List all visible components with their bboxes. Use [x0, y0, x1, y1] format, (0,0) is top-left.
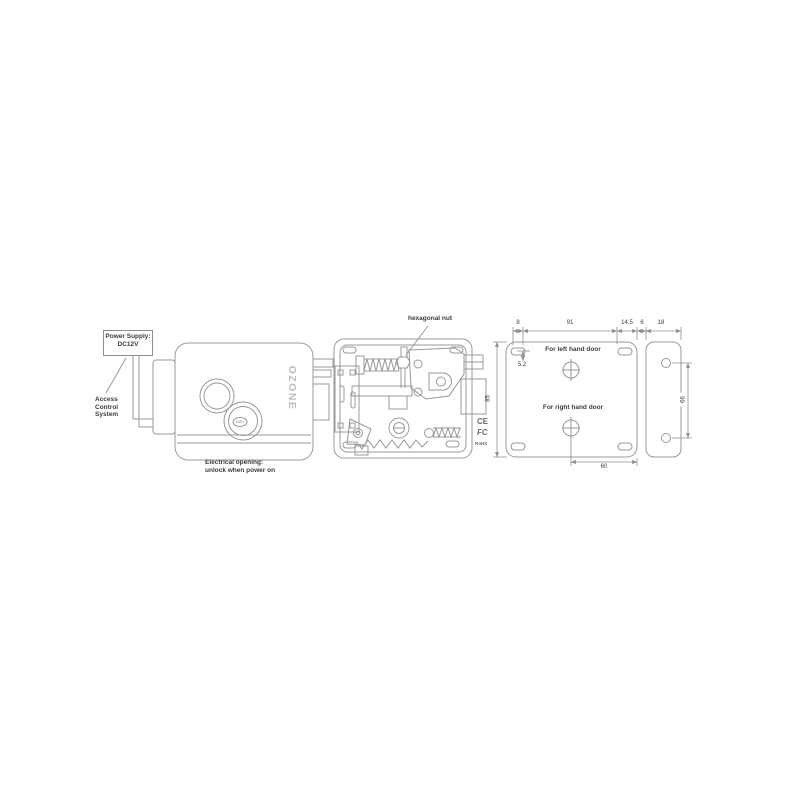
mounting-plate-view [506, 342, 681, 457]
dim-slot-spacing: 91 [560, 320, 580, 327]
screw-position-upper [562, 359, 580, 381]
case-corner-slots [343, 347, 463, 448]
dim-slot-to-edge: 14.5 [616, 320, 638, 327]
fcc-mark: FC [477, 428, 488, 437]
access-callout-line [106, 358, 126, 393]
lock-body-seams [177, 435, 311, 443]
dim-screw-to-edge: 60 [596, 464, 612, 471]
knob-turn-label: turn [233, 419, 247, 424]
brand-logo: OZONE [285, 361, 299, 415]
dim-strike-holes: 66 [680, 393, 687, 407]
power-wires [133, 356, 153, 427]
key-cylinder-inner [204, 383, 230, 409]
dim-slot-offset: 5.2 [514, 362, 530, 369]
rohs-mark: RoHS [475, 441, 487, 446]
dim-strike-width: 18 [653, 320, 669, 327]
dim-edge-to-slot: 8 [509, 320, 527, 327]
ce-mark: CE [477, 417, 488, 426]
latch-bolt-mid [313, 370, 331, 377]
electrical-opening-note: Electrical opening: unlock when power on [205, 459, 325, 474]
deadbolt-block [313, 384, 329, 420]
lock-back-flange [153, 360, 175, 434]
lever-plate [409, 348, 464, 399]
bolt-housing [461, 379, 486, 414]
strike-hole-lower [662, 434, 671, 443]
latch-bolt-top [313, 359, 333, 367]
screw-position-lower [562, 417, 580, 439]
left-door-label: For left hand door [534, 346, 612, 354]
hexagonal-nut-callout: hexagonal nut [398, 315, 462, 323]
center-slider [352, 386, 412, 409]
bottom-tab [355, 446, 368, 455]
cam-wheel [389, 418, 409, 438]
product-diagram: Power Supply: DC12V Access Control Syste… [0, 0, 800, 800]
bottom-spring [425, 428, 462, 438]
access-control-label: Access Control System [95, 396, 135, 419]
top-spring [356, 356, 399, 374]
power-supply-label: Power Supply: DC12V [103, 330, 153, 356]
dim-gap: 6 [637, 320, 647, 327]
right-door-label: For right hand door [532, 404, 614, 412]
lock-internal-view [334, 326, 486, 458]
dim-plate-height: 85 [485, 392, 492, 406]
strike-hole-upper [662, 359, 671, 368]
